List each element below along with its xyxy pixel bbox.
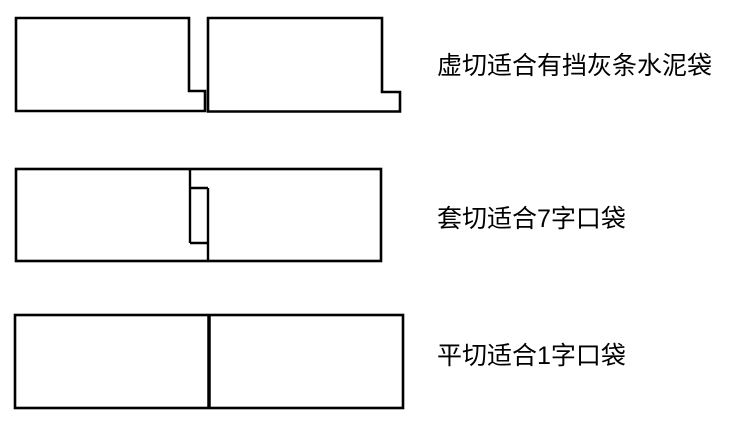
diagram-canvas: 虚切适合有挡灰条水泥袋 套切适合7字口袋 平切适合1字口袋	[0, 0, 754, 422]
flat-cut-label: 平切适合1字口袋	[437, 342, 626, 370]
sleeve-cut-diagram	[16, 169, 381, 261]
dashed-cut-diagram	[16, 18, 400, 112]
sleeve-cut-label: 套切适合7字口袋	[437, 205, 626, 233]
sleeve-cut-outline	[16, 169, 381, 261]
dashed-cut-left-piece	[16, 18, 205, 111]
flat-cut-diagram	[15, 315, 403, 408]
dashed-cut-right-piece	[208, 18, 400, 112]
dashed-cut-label: 虚切适合有挡灰条水泥袋	[437, 52, 712, 80]
